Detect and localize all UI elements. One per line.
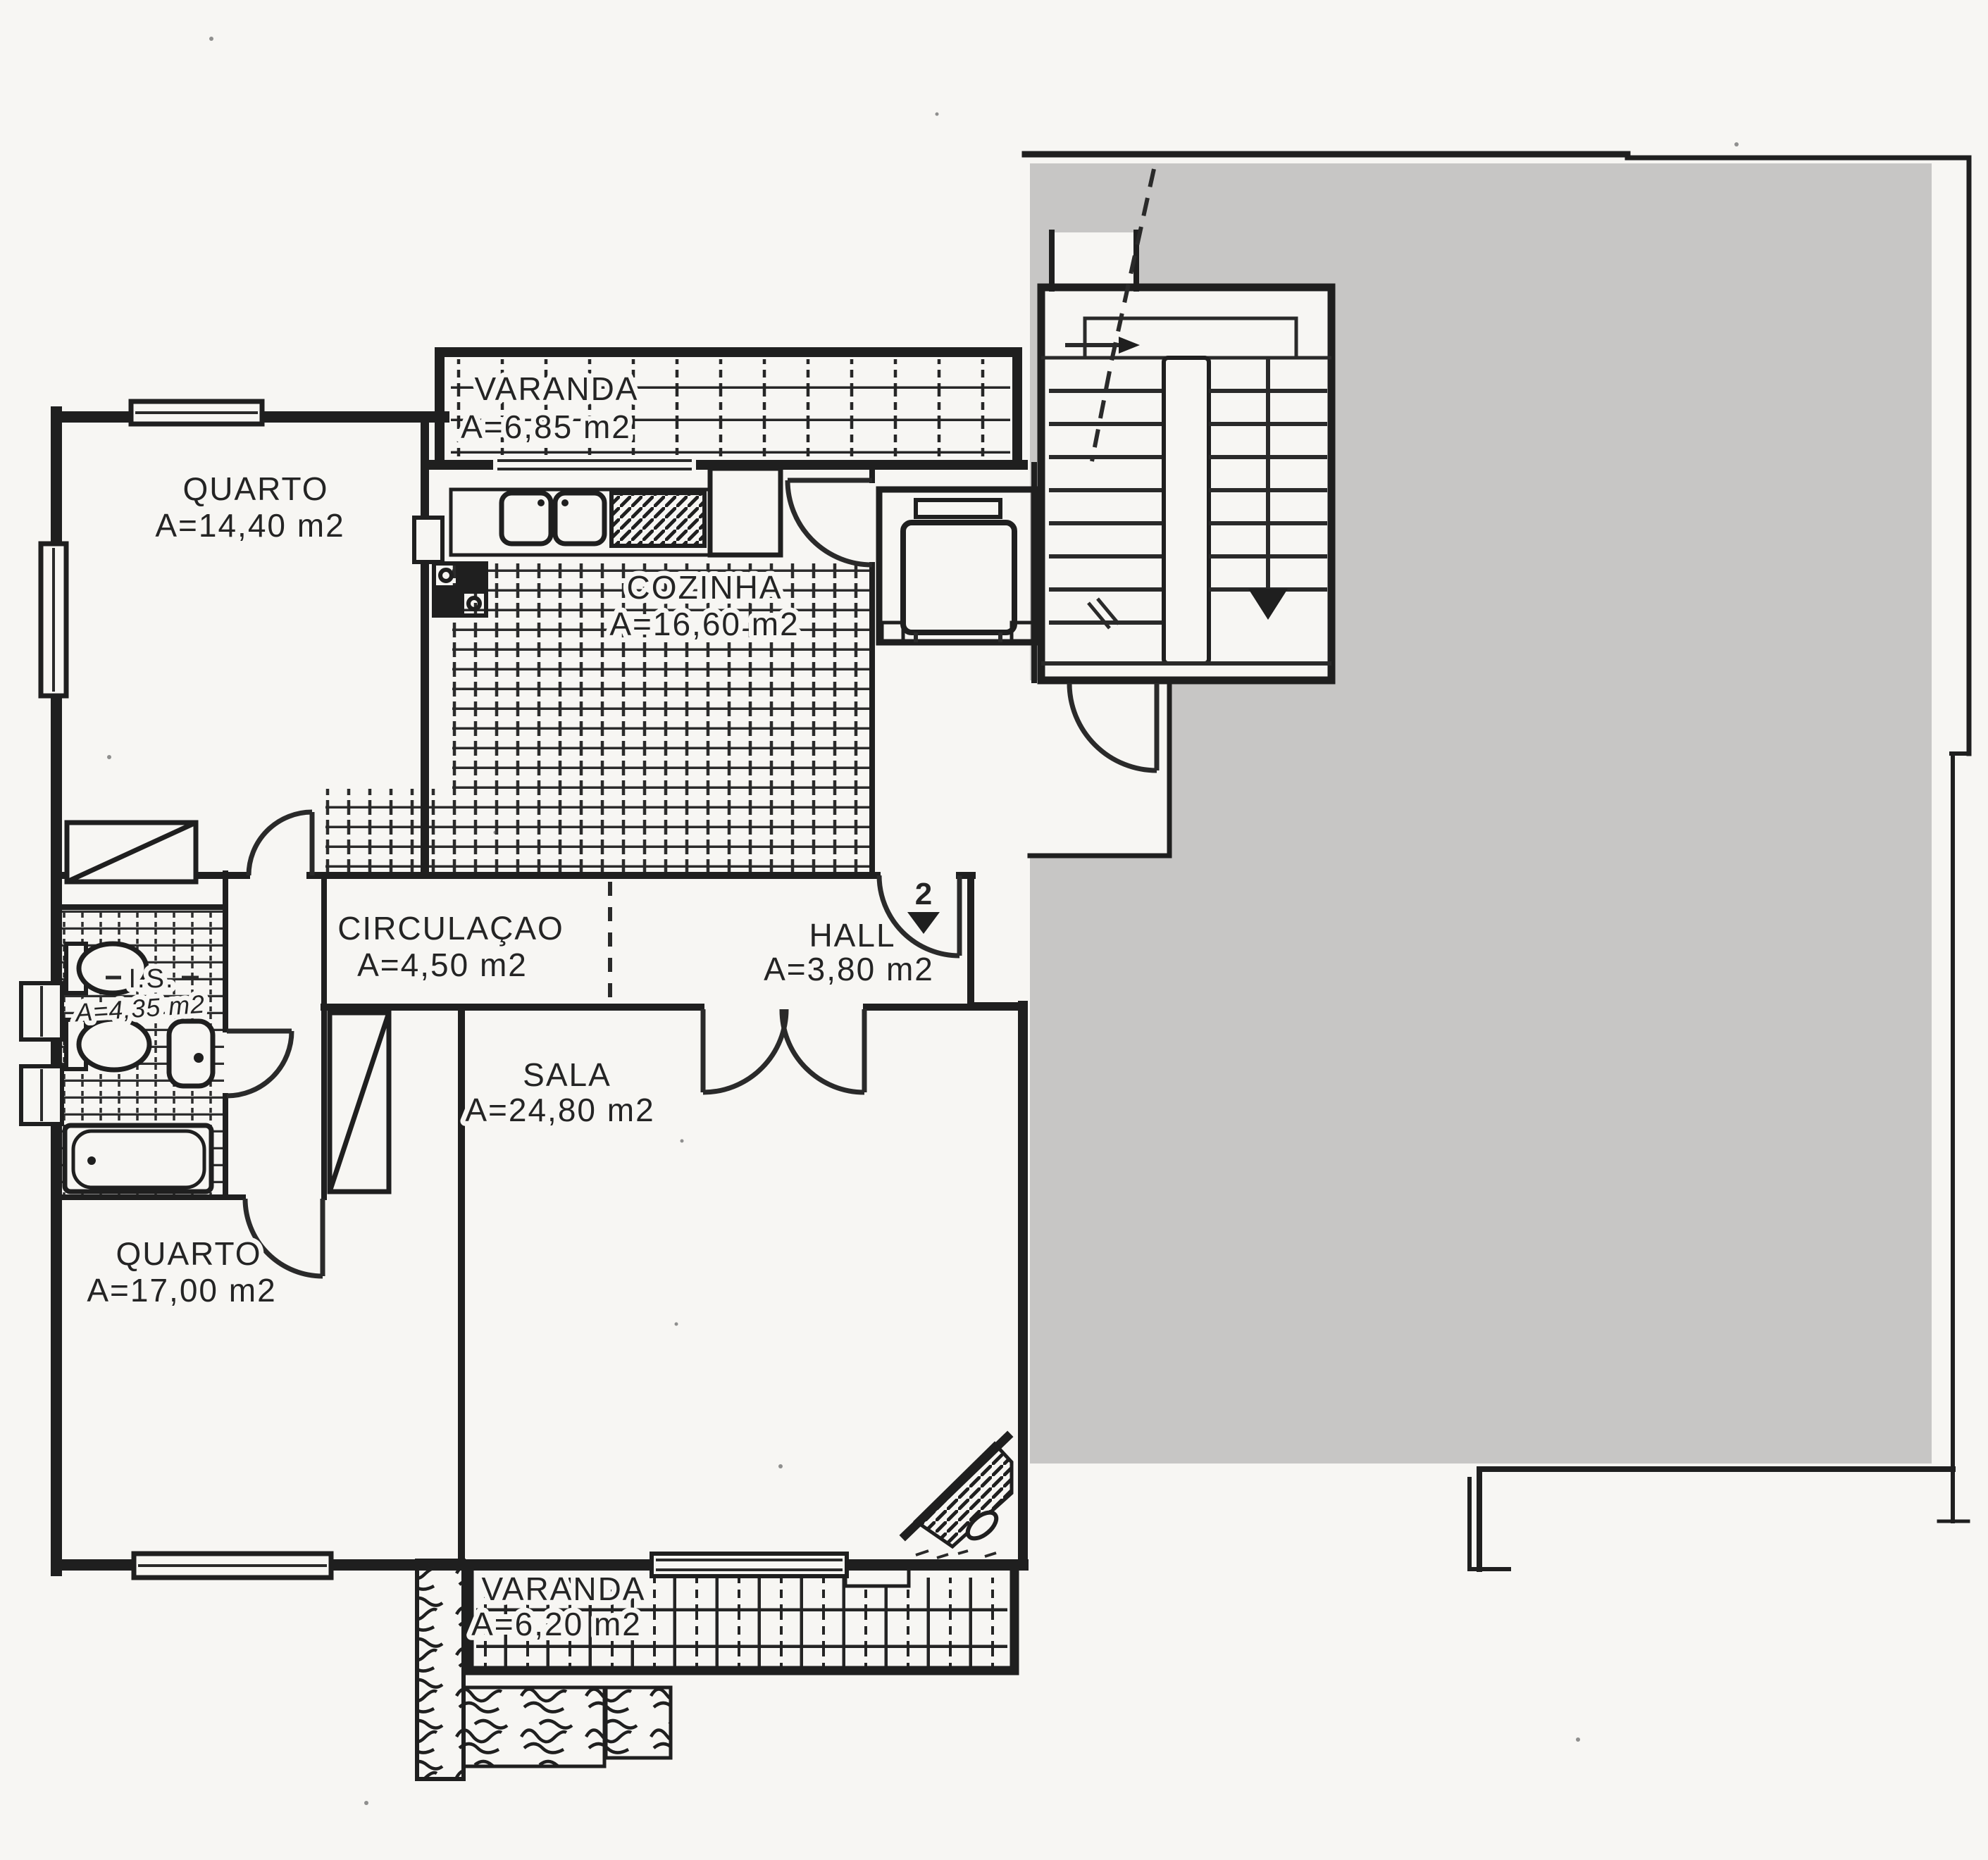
bathtub [65,1125,211,1192]
room-name: QUARTO [182,470,328,507]
room-area: A=6,85 m2 [461,408,631,445]
room-name: HALL [809,917,895,954]
stair-center-wall [1164,358,1209,663]
room-name: COZINHA [627,569,783,606]
room-name: VARANDA [475,370,639,407]
washbasin [169,1021,213,1086]
balcony-top [440,352,1017,462]
kitchen-drainer [611,493,704,546]
wardrobe-quarto2 [330,1013,389,1192]
room-area: A=6,20 m2 [471,1606,642,1642]
room-area: A=4,50 m2 [357,947,528,983]
kitchen-fridge [710,468,781,555]
room-name: QUARTO [116,1235,261,1272]
window-kitchen-top [493,455,696,475]
room-area: A=24,80 m2 [465,1092,654,1128]
room-area: A=16,60 m2 [609,606,799,642]
room-label-cozinha: COZINHA A=16,60 m2 [609,569,799,642]
window-sala-bottom [652,1554,847,1576]
room-label-quarto2: QUARTO A=17,00 m2 [87,1235,276,1309]
floor-plan-scan: VARANDA A=6,85 m2 QUARTO A=14,40 m2 COZI… [0,0,1988,1860]
stair-upper-notch [1052,232,1136,289]
kitchen-tiles-extension [325,789,452,872]
window-quarto1-top [131,401,262,424]
window-bathroom-1 [21,983,62,1040]
room-name: VARANDA [482,1571,646,1607]
window-bathroom-2 [21,1066,62,1124]
window-quarto1-left [41,544,66,696]
window-quarto2-bottom [134,1554,331,1578]
room-area: A=17,00 m2 [87,1272,276,1309]
room-area: A=3,80 m2 [764,951,934,987]
stove-burners [434,563,486,616]
room-label-varanda-bottom: VARANDA A=6,20 m2 [471,1571,645,1642]
kitchen-duct [414,518,442,562]
wardrobe-quarto1 [67,823,196,882]
room-name: CIRCULAÇAO [337,910,564,947]
room-name: I.S. [128,964,174,994]
entrance-unit-number: 2 [915,877,933,911]
room-label-quarto1: QUARTO A=14,40 m2 [155,470,344,544]
room-area: A=14,40 m2 [155,507,344,544]
room-name: SALA [523,1056,611,1093]
